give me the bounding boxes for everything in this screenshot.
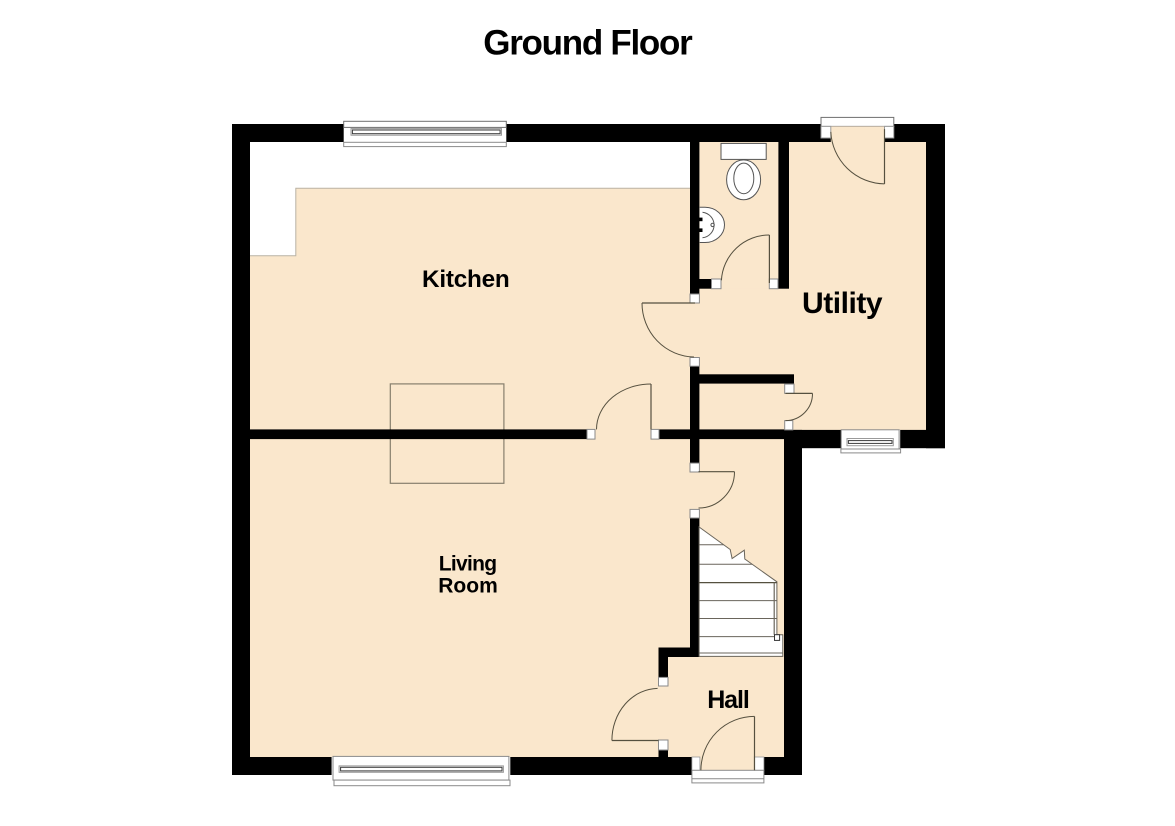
svg-text:Ground Floor: Ground Floor bbox=[483, 23, 693, 62]
svg-text:Living: Living bbox=[439, 553, 497, 576]
svg-text:Hall: Hall bbox=[707, 686, 750, 714]
svg-text:Room: Room bbox=[438, 575, 498, 598]
svg-text:Kitchen: Kitchen bbox=[422, 266, 510, 293]
svg-text:Utility: Utility bbox=[802, 287, 883, 320]
